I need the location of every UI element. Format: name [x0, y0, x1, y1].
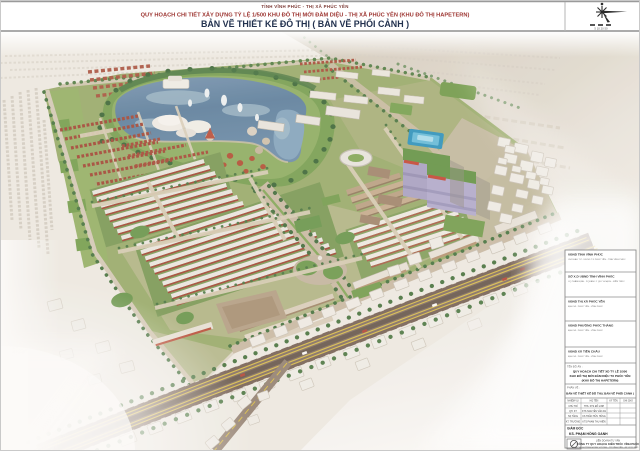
- svg-text:THS. KTS ĐỖ LINH: THS. KTS ĐỖ LINH: [584, 405, 605, 408]
- svg-text:UBND PHƯỜNG PHÚC THẮNG: UBND PHƯỜNG PHÚC THẮNG: [568, 323, 614, 328]
- svg-text:BẢN VẼ THIẾT KẾ ĐÔ THỊ ( BẢN V: BẢN VẼ THIẾT KẾ ĐÔ THỊ ( BẢN VẼ PHỐI CẢN…: [566, 391, 634, 396]
- svg-text:HỌ TÊN: HỌ TÊN: [590, 400, 599, 403]
- svg-text:KHU ĐÔ THỊ MỚI ĐẦM DIỆU TX PHÚ: KHU ĐÔ THỊ MỚI ĐẦM DIỆU TX PHÚC YÊN: [570, 373, 631, 378]
- svg-text:UBND THỊ XÃ PHÚC YÊN: UBND THỊ XÃ PHÚC YÊN: [568, 299, 605, 304]
- svg-text:KT. TRƯỞNG: KT. TRƯỞNG: [566, 421, 581, 424]
- svg-text:BẢN VẼ THIẾT KẾ ĐÔ THỊ ( BẢN V: BẢN VẼ THIẾT KẾ ĐÔ THỊ ( BẢN VẼ PHỐI CẢN…: [201, 18, 409, 29]
- svg-text:CHỦ ĐẦU TƯ : UB.ND T.X PHÚC YÊ: CHỦ ĐẦU TƯ : UB.ND T.X PHÚC YÊN - TỈNH V…: [568, 258, 626, 261]
- svg-text:ĐỊA CHỈ : PHÚC YÊN - VĨNH PHÚC: ĐỊA CHỈ : PHÚC YÊN - VĨNH PHÚC: [568, 305, 603, 308]
- svg-text:ĐỊA CHỈ : PHÚC YÊN - VĨNH PHÚC: ĐỊA CHỈ : PHÚC YÊN - VĨNH PHÚC: [568, 355, 603, 358]
- svg-text:QH. KT: QH. KT: [569, 411, 577, 413]
- svg-text:KS TRẦN HỮU HÙNG: KS TRẦN HỮU HÙNG: [582, 415, 605, 418]
- svg-text:CHỦ TRÌ: CHỦ TRÌ: [568, 405, 578, 408]
- svg-text:CÔNG TY QUY HOẠCH KIẾN TRÚC VĨ: CÔNG TY QUY HOẠCH KIẾN TRÚC VĨNH PHÚC: [577, 441, 640, 446]
- svg-text:(KHU ĐÔ THỊ HAPETERN): (KHU ĐÔ THỊ HAPETERN): [582, 378, 619, 383]
- svg-text:ĐỊA CHỈ : PHÚC YÊN - VĨNH PHÚC: ĐỊA CHỈ : PHÚC YÊN - VĨNH PHÚC: [568, 329, 603, 332]
- svg-text:QUY HOẠCH CHI TIẾT XD TỶ LỆ 1/: QUY HOẠCH CHI TIẾT XD TỶ LỆ 1/500: [573, 369, 628, 374]
- svg-text:HẠ TẦNG: HẠ TẦNG: [568, 415, 578, 418]
- svg-text:UBND XÃ TIỀN CHÂU: UBND XÃ TIỀN CHÂU: [568, 349, 601, 354]
- svg-text:KS. PHẠM HỒNG OANH: KS. PHẠM HỒNG OANH: [569, 431, 608, 436]
- svg-text:SỞ X.D UBND TỈNH VĨNH PHÚC: SỞ X.D UBND TỈNH VĨNH PHÚC: [568, 274, 615, 279]
- svg-text:GHI CHÚ: GHI CHÚ: [623, 400, 633, 403]
- svg-text:KTS PHẠM THU HIỀN: KTS PHẠM THU HIỀN: [582, 421, 606, 424]
- svg-text:NHIỆM VỤ: NHIỆM VỤ: [567, 400, 579, 403]
- svg-text:KTS NGUYỄN VĂN AN: KTS NGUYỄN VĂN AN: [582, 410, 606, 413]
- svg-text:QUY HOẠCH CHI TIẾT XÂY DỰNG TỶ: QUY HOẠCH CHI TIẾT XÂY DỰNG TỶ LỆ 1/500 …: [141, 11, 470, 19]
- svg-text:CQ THẨM ĐỊNH : P.QUẢN LÝ QUY H: CQ THẨM ĐỊNH : P.QUẢN LÝ QUY HOẠCH - KIẾ…: [568, 280, 625, 283]
- svg-text:TỈNH VĨNH PHÚC - THỊ XÃ PHÚC: TỈNH VĨNH PHÚC - THỊ XÃ PHÚC YÊN: [261, 4, 348, 9]
- svg-text:ĐỊA CHỈ: ĐƯỜNG HÙNG VƯƠNG - TP: ĐỊA CHỈ: ĐƯỜNG HÙNG VƯƠNG - TP VĨNH YÊN …: [573, 446, 640, 449]
- svg-text:GIÁM ĐỐC: GIÁM ĐỐC: [567, 426, 584, 431]
- svg-text:KÝ TÊN: KÝ TÊN: [609, 400, 618, 403]
- svg-text:UBND TỈNH VĨNH PHÚC: UBND TỈNH VĨNH PHÚC: [568, 252, 604, 257]
- svg-text:5 10 20 50: 5 10 20 50: [594, 27, 608, 31]
